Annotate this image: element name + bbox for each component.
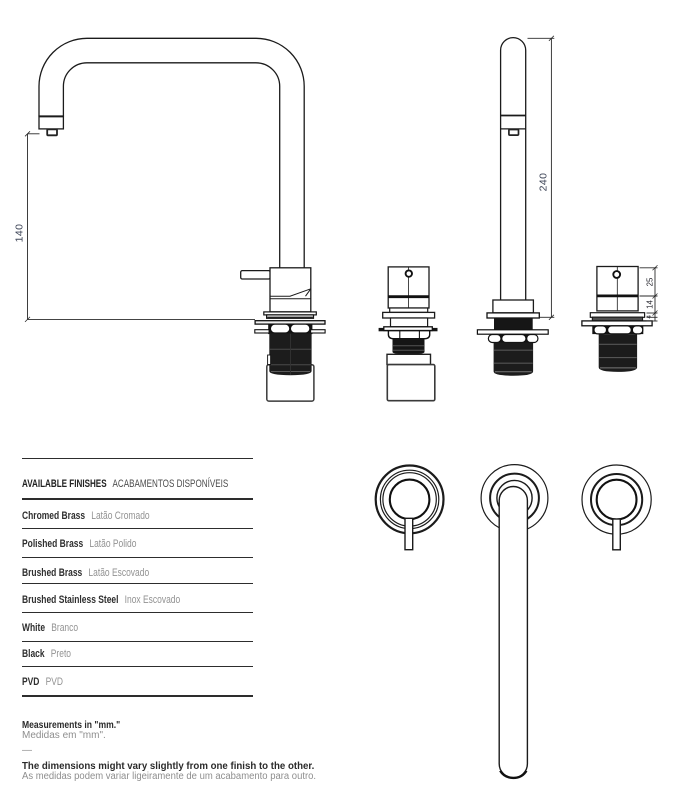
svg-text:240: 240	[537, 173, 549, 192]
svg-text:140: 140	[13, 224, 25, 243]
svg-text:25: 25	[646, 277, 655, 286]
svg-text:4: 4	[646, 315, 653, 319]
svg-text:14: 14	[646, 300, 655, 309]
